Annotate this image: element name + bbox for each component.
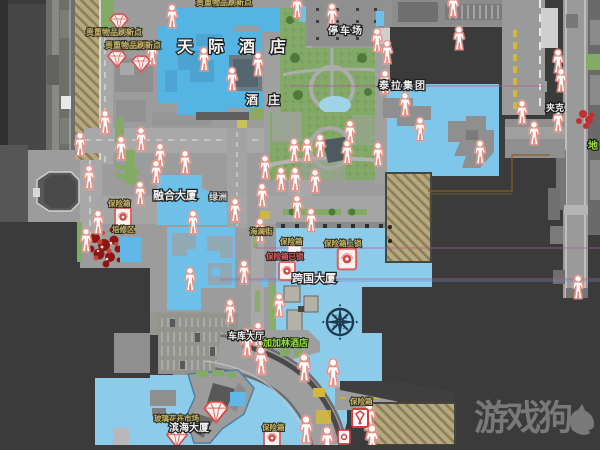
svg-text:泰拉集团: 泰拉集团 (378, 79, 427, 92)
svg-text:海澜街: 海澜街 (250, 226, 273, 236)
svg-text:保险箱: 保险箱 (261, 422, 285, 432)
svg-text:保险箱: 保险箱 (349, 396, 373, 406)
svg-text:地: 地 (588, 139, 598, 152)
svg-text:游戏狗: 游戏狗 (474, 399, 572, 438)
svg-text:夹克: 夹克 (546, 102, 564, 113)
svg-text:车库大厅: 车库大厅 (228, 330, 264, 341)
svg-text:滨海大厦: 滨海大厦 (169, 421, 210, 434)
svg-text:保险箱: 保险箱 (107, 198, 131, 208)
svg-text:融合大厦: 融合大厦 (153, 188, 198, 202)
svg-text:停车场: 停车场 (328, 24, 364, 37)
svg-text:培修区: 培修区 (112, 224, 135, 234)
svg-text:保险箱: 保险箱 (279, 236, 303, 246)
svg-text:贵重物品刷新点: 贵重物品刷新点 (196, 0, 252, 7)
svg-text:绿洲: 绿洲 (209, 191, 227, 202)
svg-text:保险箱已锁: 保险箱已锁 (265, 251, 304, 261)
svg-text:酒庄: 酒庄 (246, 92, 290, 107)
svg-text:加加林酒店: 加加林酒店 (262, 337, 308, 348)
svg-text:跨国大厦: 跨国大厦 (292, 271, 337, 285)
svg-text:贵重物品刷新点: 贵重物品刷新点 (105, 40, 161, 50)
svg-text:保险箱上锁: 保险箱上锁 (323, 238, 362, 248)
svg-text:天际酒店: 天际酒店 (177, 37, 301, 56)
svg-text:玻璃花卉市场: 玻璃花卉市场 (154, 413, 199, 423)
svg-text:贵重物品刷新点: 贵重物品刷新点 (86, 27, 142, 37)
